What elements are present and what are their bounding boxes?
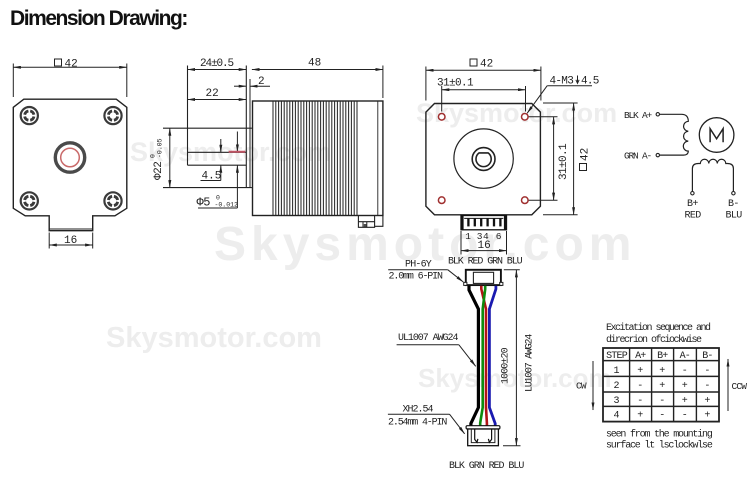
svg-text:1000±20: 1000±20 bbox=[501, 347, 512, 384]
svg-text:+: + bbox=[637, 366, 643, 377]
svg-text:BLK A+: BLK A+ bbox=[624, 110, 653, 121]
svg-text:B+: B+ bbox=[657, 351, 668, 362]
svg-text:Excitation sequence and: Excitation sequence and bbox=[606, 322, 711, 334]
svg-text:3: 3 bbox=[613, 396, 619, 407]
svg-text:-: - bbox=[682, 410, 688, 421]
svg-text:31±0.1: 31±0.1 bbox=[437, 78, 474, 90]
svg-text:Skysmotor.com: Skysmotor.com bbox=[416, 98, 617, 128]
svg-text:24±0.5: 24±0.5 bbox=[200, 58, 234, 70]
svg-text:surface lt lsclockwlse: surface lt lsclockwlse bbox=[606, 440, 713, 452]
svg-text:direcrion ofciockwise: direcrion ofciockwise bbox=[606, 334, 702, 346]
svg-text:seen from the mounting: seen from the mounting bbox=[606, 429, 713, 441]
svg-text:+: + bbox=[659, 366, 665, 377]
svg-text:-0.05: -0.05 bbox=[157, 138, 164, 158]
svg-text:STEP: STEP bbox=[606, 351, 628, 362]
svg-text:48: 48 bbox=[308, 58, 321, 70]
svg-text:CW: CW bbox=[576, 381, 587, 392]
svg-text:GRN A-: GRN A- bbox=[624, 151, 652, 162]
svg-text:B-: B- bbox=[728, 199, 739, 210]
svg-text:-: - bbox=[637, 396, 643, 407]
svg-text:CCW: CCW bbox=[732, 381, 748, 392]
svg-text:-: - bbox=[704, 381, 710, 392]
svg-text:1: 1 bbox=[465, 231, 471, 242]
svg-text:LU1007 AWG24: LU1007 AWG24 bbox=[525, 334, 536, 392]
svg-text:42: 42 bbox=[580, 148, 592, 161]
svg-text:RED: RED bbox=[685, 211, 702, 222]
svg-text:4.5: 4.5 bbox=[202, 171, 222, 183]
svg-text:2: 2 bbox=[258, 76, 265, 88]
svg-text:+: + bbox=[637, 410, 643, 421]
svg-text:1: 1 bbox=[613, 366, 619, 377]
svg-text:A+: A+ bbox=[635, 351, 646, 362]
svg-text:A-: A- bbox=[680, 351, 690, 362]
svg-text:PH-6Y: PH-6Y bbox=[405, 260, 432, 271]
svg-text:B+: B+ bbox=[687, 199, 698, 210]
svg-text:42: 42 bbox=[65, 59, 78, 71]
svg-text:22: 22 bbox=[206, 88, 219, 100]
svg-text:-0.012: -0.012 bbox=[215, 202, 239, 209]
svg-text:6: 6 bbox=[496, 231, 502, 242]
svg-text:0: 0 bbox=[216, 195, 220, 202]
svg-text:2.0mm 6-PIN: 2.0mm 6-PIN bbox=[389, 272, 444, 283]
svg-text:BLK GRN RED BLU: BLK GRN RED BLU bbox=[449, 461, 524, 472]
svg-text:4.5: 4.5 bbox=[581, 76, 599, 88]
svg-text:BLU: BLU bbox=[726, 211, 743, 222]
svg-text:+: + bbox=[704, 396, 710, 407]
svg-text:+: + bbox=[682, 396, 688, 407]
svg-text:Φ5: Φ5 bbox=[197, 196, 211, 210]
svg-text:+: + bbox=[704, 410, 710, 421]
svg-text:+: + bbox=[682, 381, 688, 392]
svg-text:+: + bbox=[659, 381, 665, 392]
svg-text:-: - bbox=[659, 410, 665, 421]
svg-text:-: - bbox=[704, 366, 710, 377]
svg-text:-: - bbox=[659, 396, 665, 407]
svg-text:42: 42 bbox=[480, 59, 493, 71]
svg-text:UL1007 AWG24: UL1007 AWG24 bbox=[398, 333, 458, 344]
svg-text:BLK RED GRN BLU: BLK RED GRN BLU bbox=[448, 256, 523, 267]
svg-text:Φ22: Φ22 bbox=[153, 162, 165, 180]
svg-text:2: 2 bbox=[613, 381, 619, 392]
svg-text:4-M3: 4-M3 bbox=[550, 76, 574, 88]
svg-text:-: - bbox=[682, 366, 688, 377]
svg-text:-: - bbox=[637, 381, 643, 392]
svg-text:Skysmotor.com: Skysmotor.com bbox=[106, 322, 322, 354]
svg-text:Dimension Drawing:: Dimension Drawing: bbox=[10, 7, 187, 30]
svg-text:2.54mm 4-PIN: 2.54mm 4-PIN bbox=[388, 418, 447, 429]
svg-text:16: 16 bbox=[64, 235, 77, 247]
svg-text:31±0.1: 31±0.1 bbox=[558, 143, 570, 180]
svg-text:B-: B- bbox=[702, 351, 712, 362]
svg-text:0: 0 bbox=[150, 154, 157, 158]
svg-text:4: 4 bbox=[613, 410, 619, 421]
